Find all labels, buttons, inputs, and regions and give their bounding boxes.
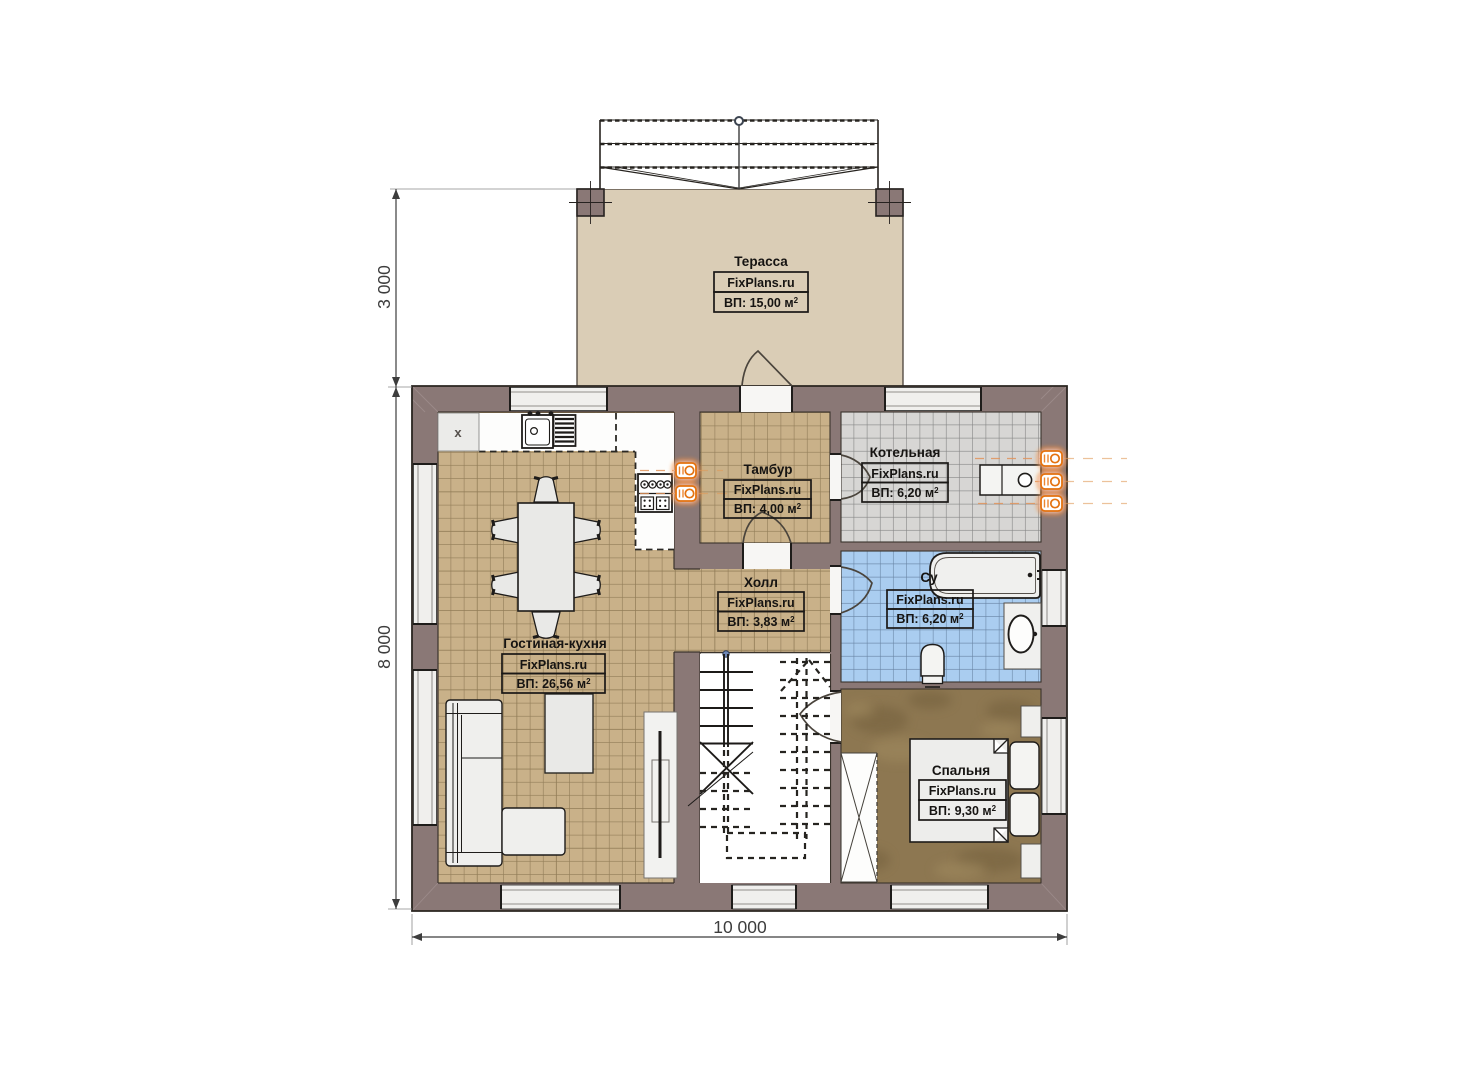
svg-text:FixPlans.ru: FixPlans.ru (734, 483, 801, 497)
svg-text:Тамбур: Тамбур (744, 462, 793, 477)
svg-text:ВП: 3,83 м2: ВП: 3,83 м2 (727, 615, 795, 629)
svg-text:Гостиная-кухня: Гостиная-кухня (503, 636, 606, 651)
svg-text:Холл: Холл (744, 575, 778, 590)
svg-text:ВП: 4,00 м2: ВП: 4,00 м2 (734, 502, 802, 516)
svg-text:Спальня: Спальня (932, 763, 990, 778)
svg-text:3 000: 3 000 (374, 265, 394, 309)
svg-text:FixPlans.ru: FixPlans.ru (871, 467, 938, 481)
svg-text:ВП: 6,20 м2: ВП: 6,20 м2 (896, 612, 964, 626)
svg-text:Котельная: Котельная (870, 445, 941, 460)
svg-text:FixPlans.ru: FixPlans.ru (520, 658, 587, 672)
svg-text:x: x (454, 425, 462, 440)
svg-text:ВП: 15,00 м2: ВП: 15,00 м2 (724, 296, 799, 310)
svg-text:ВП: 26,56 м2: ВП: 26,56 м2 (516, 677, 591, 691)
svg-text:FixPlans.ru: FixPlans.ru (727, 276, 794, 290)
svg-text:10 000: 10 000 (713, 917, 767, 937)
svg-text:FixPlans.ru: FixPlans.ru (929, 784, 996, 798)
svg-text:FixPlans.ru: FixPlans.ru (896, 593, 963, 607)
svg-text:FixPlans.ru: FixPlans.ru (727, 596, 794, 610)
svg-text:Терасса: Терасса (734, 254, 788, 269)
svg-text:8 000: 8 000 (374, 625, 394, 669)
svg-text:ВП: 9,30 м2: ВП: 9,30 м2 (929, 804, 997, 818)
svg-text:Су: Су (920, 570, 938, 585)
svg-text:ВП: 6,20 м2: ВП: 6,20 м2 (871, 486, 939, 500)
